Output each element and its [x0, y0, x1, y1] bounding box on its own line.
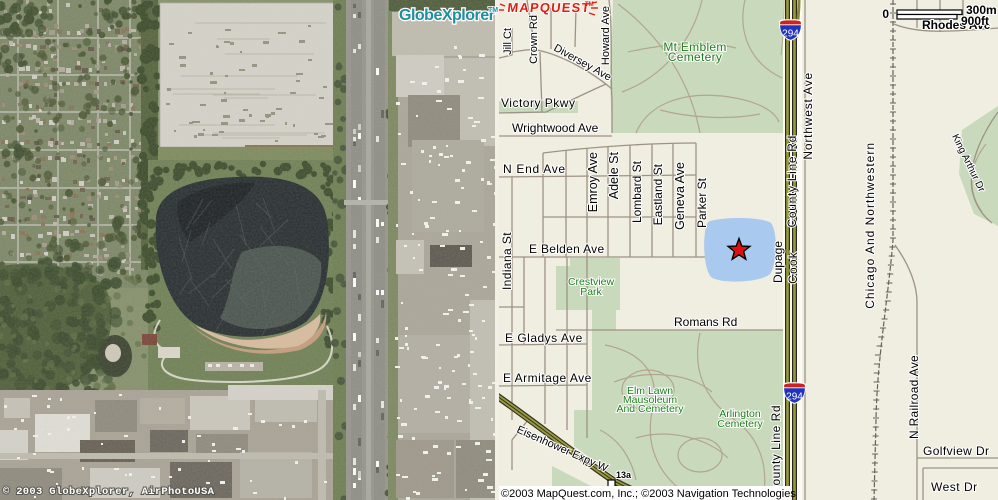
svg-text:Howard Ave: Howard Ave	[600, 6, 612, 65]
svg-text:MAPQUEST: MAPQUEST	[507, 0, 592, 15]
svg-text:Chicago And Northwestern: Chicago And Northwestern	[863, 142, 877, 309]
svg-text:© 2003 GlobeXplorer, AirPhotoU: © 2003 GlobeXplorer, AirPhotoUSA	[3, 486, 215, 498]
svg-text:Lombard St: Lombard St	[630, 160, 644, 223]
svg-text:13a: 13a	[616, 470, 632, 480]
svg-text:©2003 MapQuest.com, Inc.; ©200: ©2003 MapQuest.com, Inc.; ©2003 Navigati…	[501, 488, 796, 500]
svg-text:Victory Pkwy: Victory Pkwy	[501, 96, 575, 110]
svg-text:County Line Rd: County Line Rd	[785, 135, 799, 228]
svg-text:Golfview Dr: Golfview Dr	[923, 444, 989, 458]
svg-text:E Armitage Ave: E Armitage Ave	[503, 371, 592, 385]
svg-text:Cemetery: Cemetery	[668, 50, 722, 64]
svg-text:N Railroad Ave: N Railroad Ave	[907, 355, 921, 439]
svg-text:Cemetery: Cemetery	[717, 418, 763, 430]
svg-text:Parker St: Parker St	[695, 177, 709, 228]
svg-text:GlobeXplorer: GlobeXplorer	[399, 7, 495, 24]
svg-text:Indiana St: Indiana St	[500, 232, 514, 290]
svg-text:E Belden Ave: E Belden Ave	[529, 242, 604, 256]
svg-text:Crown Rd: Crown Rd	[528, 15, 540, 64]
svg-text:N End Ave: N End Ave	[503, 162, 566, 176]
svg-text:Dupage: Dupage	[771, 241, 785, 283]
svg-text:Adele St: Adele St	[607, 151, 621, 199]
svg-text:294: 294	[786, 392, 803, 403]
svg-text:0: 0	[882, 7, 889, 21]
svg-text:E Gladys Ave: E Gladys Ave	[505, 331, 583, 345]
svg-text:294: 294	[782, 29, 799, 40]
svg-text:County Line Rd: County Line Rd	[769, 405, 783, 495]
svg-text:Northwest Ave: Northwest Ave	[801, 72, 815, 160]
svg-text:Eastland St: Eastland St	[651, 163, 665, 225]
svg-text:TM: TM	[585, 2, 594, 8]
svg-text:TM: TM	[488, 7, 498, 14]
svg-text:West Dr: West Dr	[931, 480, 978, 494]
svg-text:Jill Ct: Jill Ct	[502, 28, 514, 55]
svg-text:Wrightwood Ave: Wrightwood Ave	[512, 121, 599, 135]
svg-text:900ft: 900ft	[961, 14, 989, 28]
svg-text:Geneva Ave: Geneva Ave	[673, 162, 687, 230]
svg-text:Park: Park	[580, 286, 602, 298]
svg-text:Cook: Cook	[786, 251, 800, 284]
svg-text:Emroy Ave: Emroy Ave	[586, 152, 600, 212]
svg-text:Romans Rd: Romans Rd	[674, 315, 737, 329]
svg-text:And Cemetery: And Cemetery	[616, 403, 684, 415]
